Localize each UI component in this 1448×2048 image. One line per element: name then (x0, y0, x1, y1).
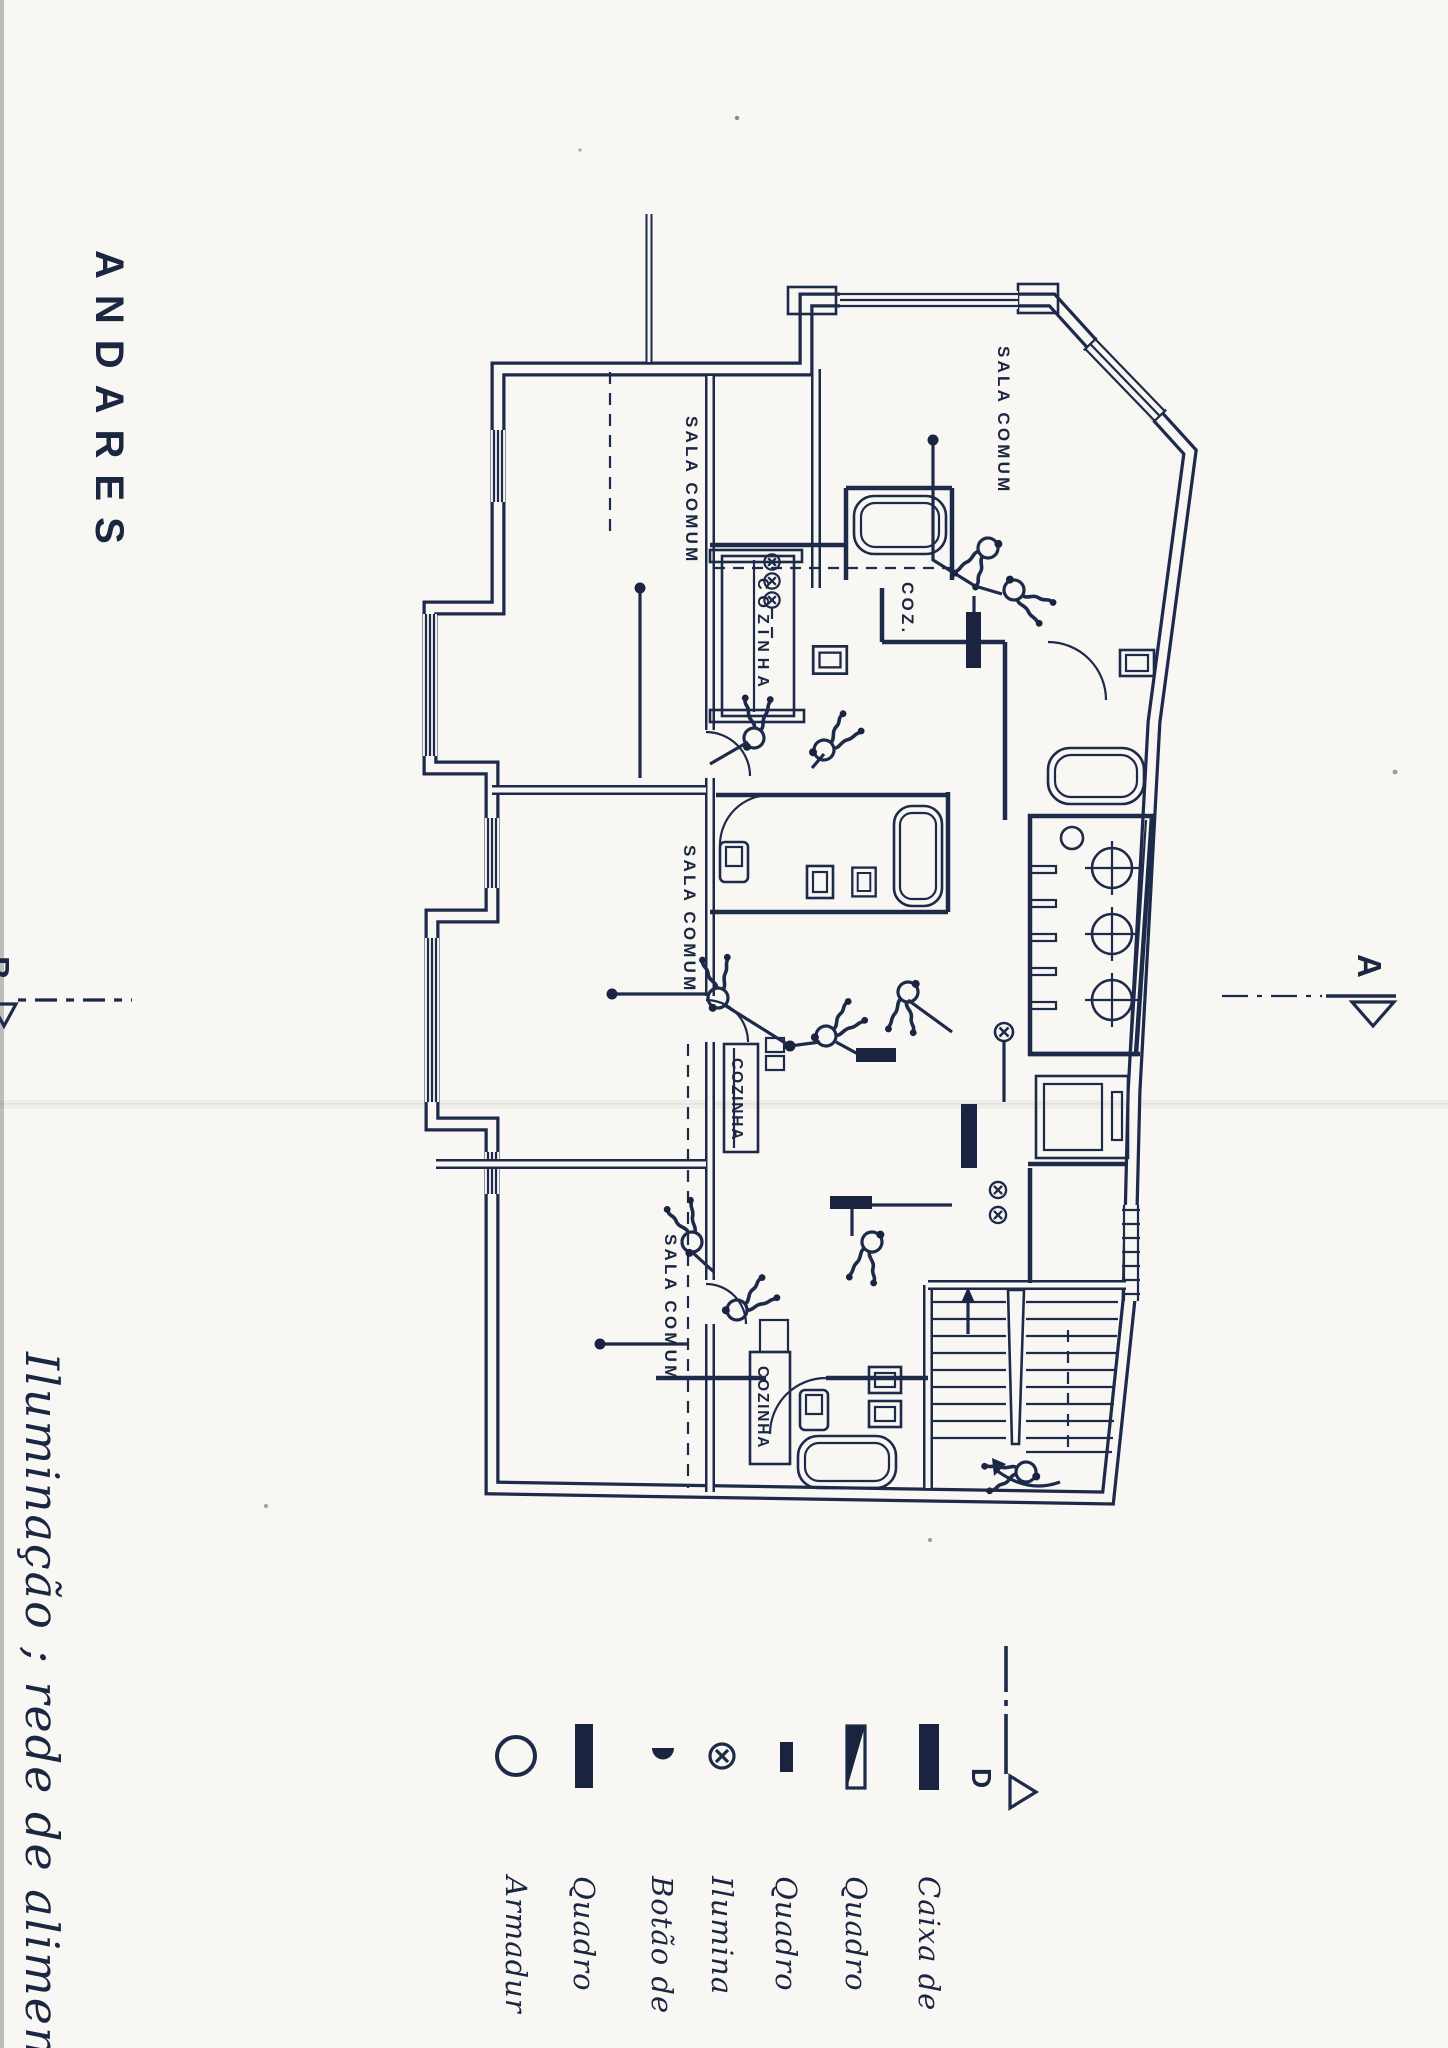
drawing-caption: Iluminação ; rede de alimentação (15, 1351, 69, 2048)
vent-shaft-icon (1085, 907, 1139, 961)
section-letter-d: D (966, 1768, 997, 1788)
legend-label: Quadro (567, 1876, 601, 1992)
section-letter-a: A (1351, 954, 1388, 978)
room-label-cozinha: COZINHA (754, 1366, 771, 1449)
scanned-drawing-page: SALA COMUM SALA COMUM COZINHA COZ. SALA … (0, 0, 1448, 2048)
stairwell (932, 1287, 1118, 1486)
legend-label: Armadur (499, 1873, 533, 2015)
switchboard-icon (830, 1196, 872, 1209)
section-marker-a: A (1222, 954, 1396, 1026)
legend-label: Quadro (839, 1876, 873, 1992)
ceiling-luminaire-icon (1001, 575, 1058, 628)
bidet-icon (807, 866, 833, 898)
room-label-cozinha: COZINHA (754, 578, 771, 693)
legend-board-bar-icon (575, 1724, 593, 1788)
ceiling-point-icon (785, 1041, 796, 1052)
ceiling-point-icon (607, 989, 618, 1000)
legend-section-marker-d: D (966, 1646, 1036, 1808)
bath-apt2 (1048, 642, 1154, 804)
switchboard-icon (961, 1104, 977, 1168)
room-label-sala-comum: SALA COMUM (661, 1234, 680, 1382)
room-label-coz: COZ. (898, 582, 917, 635)
ceiling-luminaire-icon (808, 704, 869, 768)
legend-large-bar-icon (919, 1724, 939, 1790)
light-well (1030, 816, 1152, 1054)
legend-label: Quadro (769, 1876, 803, 1992)
floor-plan-drawing: SALA COMUM SALA COMUM COZINHA COZ. SALA … (0, 0, 1448, 2048)
ceiling-luminaire-icon (809, 990, 873, 1057)
ceiling-luminaire-icon (723, 684, 789, 753)
sink-icon (869, 1401, 901, 1427)
storage-room (1036, 1076, 1128, 1158)
ceiling-luminaire-icon (872, 978, 936, 1045)
vent-shaft-icon (1085, 841, 1139, 895)
lamp-point-icon (995, 1023, 1013, 1041)
section-marker-b: B (0, 956, 132, 1026)
room-label-sala-comum: SALA COMUM (680, 845, 699, 993)
legend-label: Caixa de (912, 1876, 946, 2011)
toilet-icon (720, 842, 748, 882)
legend-half-bar-icon (847, 1726, 865, 1788)
ceiling-luminaire-icon (836, 1229, 897, 1293)
ceiling-point-icon (635, 583, 646, 594)
room-label-sala-comum: SALA COMUM (682, 416, 701, 564)
stove-icon (813, 646, 847, 673)
ceiling-point-icon (928, 435, 939, 446)
legend-small-bar-icon (780, 1742, 793, 1772)
bath-apt3 (720, 795, 942, 906)
sink-icon (852, 868, 875, 897)
legend-label: Botão de (645, 1875, 679, 2014)
legend-crossed-circle-icon (710, 1744, 734, 1768)
building-outline (430, 214, 1190, 1498)
legend-luminaire-circle-icon (497, 1737, 535, 1775)
room-label-sala-comum: SALA COMUM (994, 346, 1013, 494)
legend-label: Ilumina (705, 1875, 739, 1995)
room-label-cozinha: COZINHA (728, 1058, 745, 1141)
section-letter-b: B (0, 956, 16, 980)
page-title: ANDARES (87, 250, 131, 560)
switchboard-icon (856, 1048, 896, 1062)
lamp-point-icon (990, 1207, 1006, 1223)
switchboard-icon (966, 612, 981, 668)
lamp-point-icon (990, 1182, 1006, 1198)
toilet-icon (800, 1390, 828, 1430)
legend-pushbutton-icon (652, 1748, 674, 1760)
scan-artifacts (0, 0, 1448, 2048)
ceiling-luminaire-icon (720, 1265, 786, 1334)
ceiling-luminaire-icon (950, 535, 1003, 592)
legend: D Armadur Quadro Botão de Ilumina Quadro… (497, 1646, 1036, 2015)
ceiling-point-icon (595, 1339, 606, 1350)
